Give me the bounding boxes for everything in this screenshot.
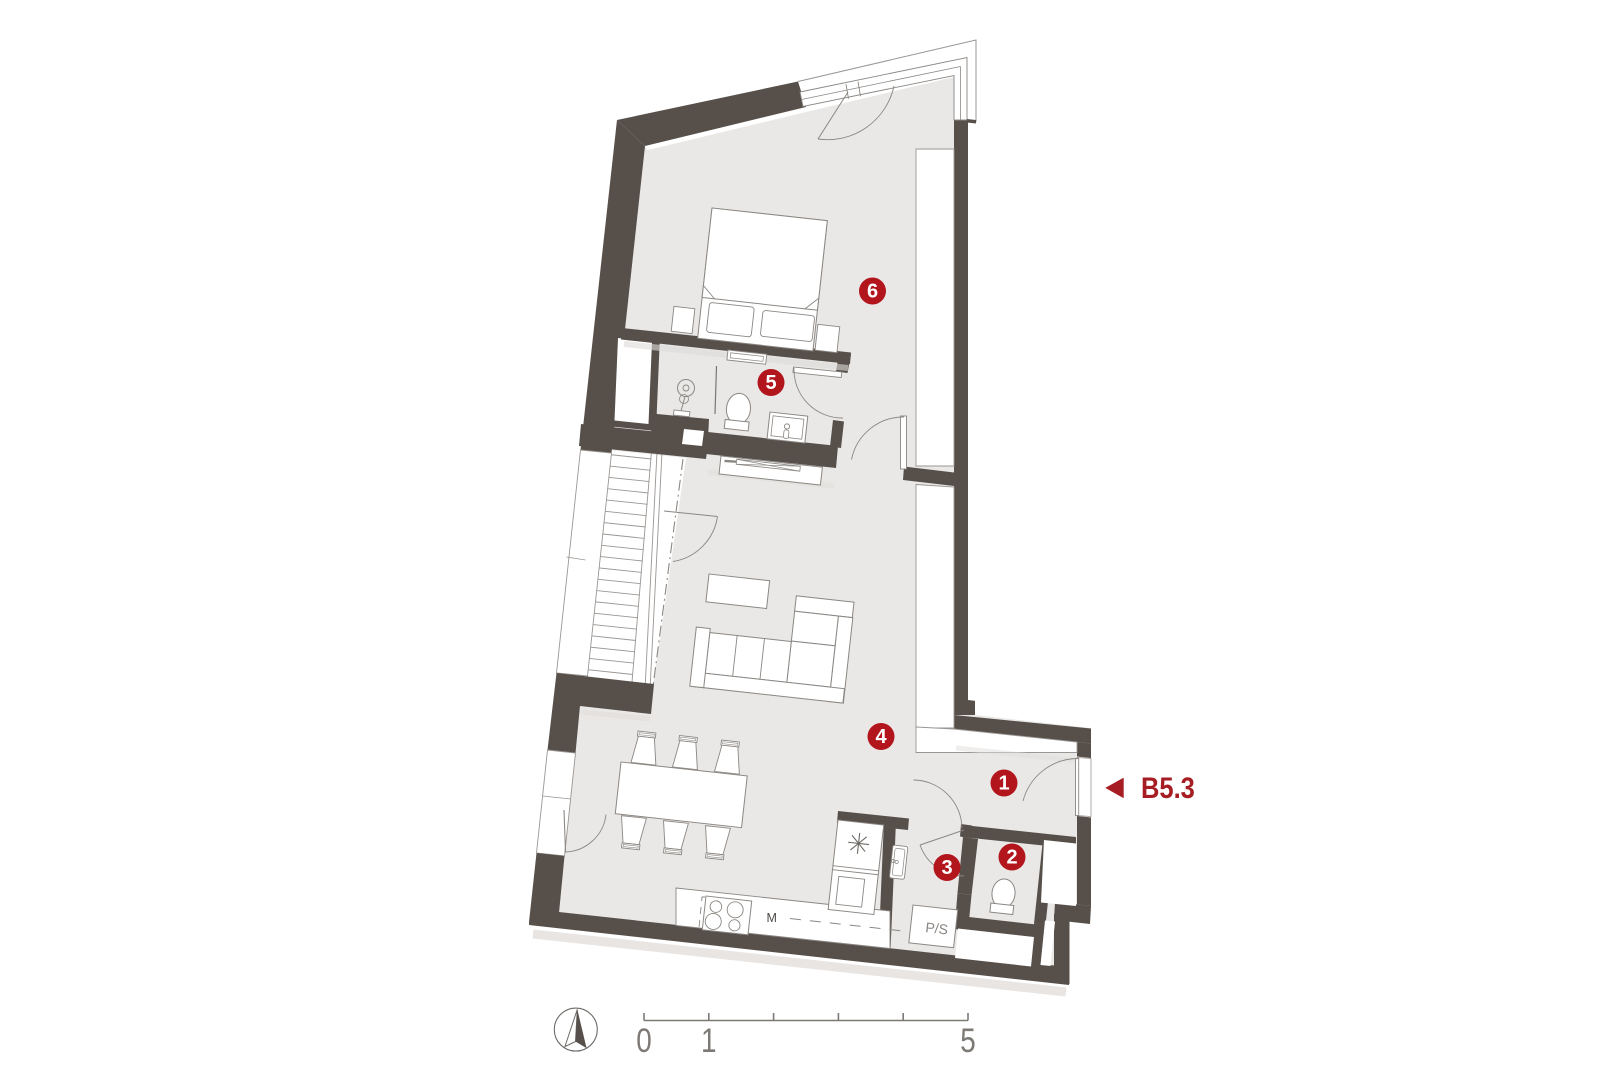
svg-text:P/S: P/S — [925, 919, 949, 937]
svg-text:6: 6 — [867, 281, 878, 303]
svg-text:5: 5 — [960, 1021, 976, 1059]
svg-text:1: 1 — [998, 773, 1009, 795]
svg-text:3: 3 — [941, 857, 952, 879]
svg-text:B5.3: B5.3 — [1141, 771, 1195, 804]
svg-text:0: 0 — [636, 1021, 652, 1059]
svg-text:5: 5 — [765, 372, 776, 394]
svg-text:2: 2 — [1006, 847, 1017, 869]
svg-text:M: M — [767, 911, 777, 925]
svg-text:4: 4 — [875, 726, 887, 748]
svg-text:1: 1 — [701, 1021, 717, 1059]
